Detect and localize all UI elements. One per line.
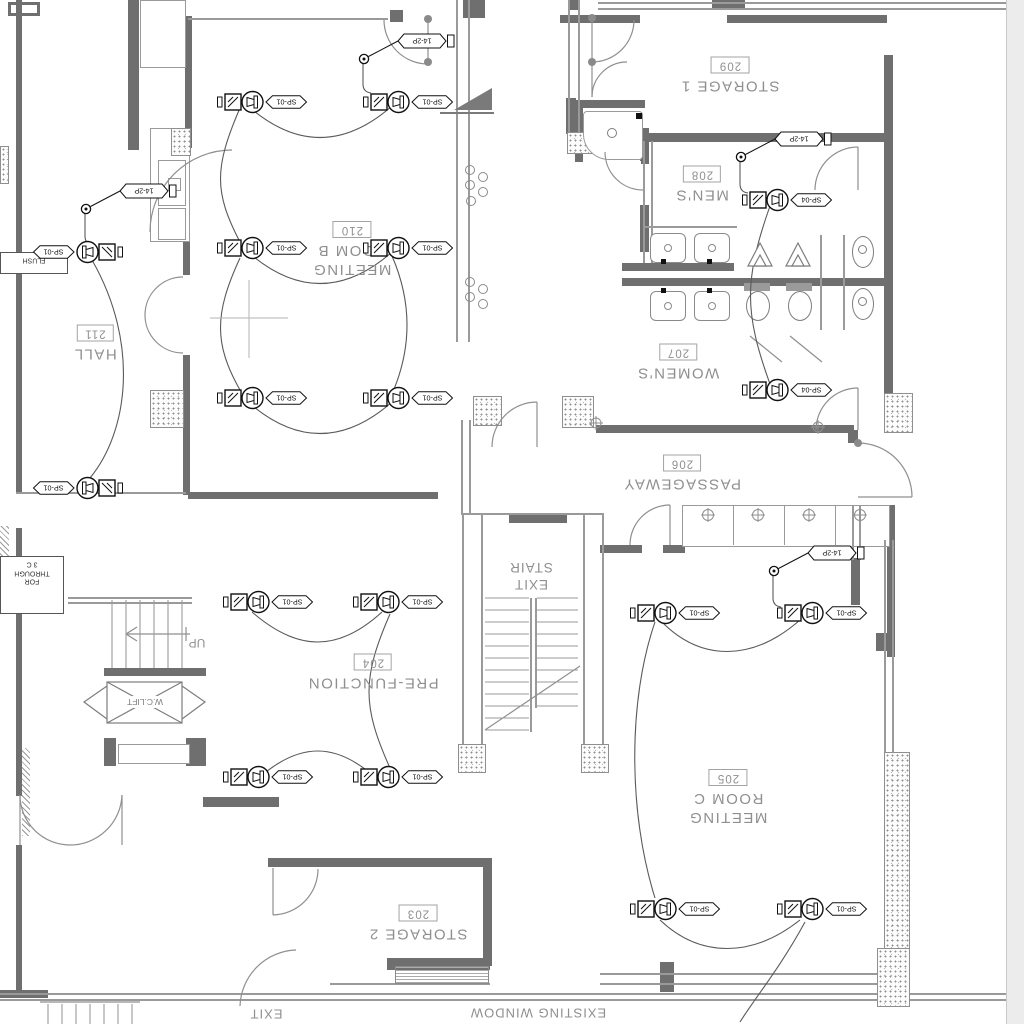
- svg-text:SP-01: SP-01: [277, 243, 297, 252]
- room-name: HALL: [73, 345, 117, 364]
- speaker-device-icon: SP-04: [741, 377, 833, 408]
- speaker-device-icon: SP-01: [352, 764, 444, 795]
- svg-text:SP-01: SP-01: [413, 597, 433, 606]
- svg-text:SP-01: SP-01: [44, 247, 64, 256]
- room-label-storage-1: STORAGE 1209: [680, 57, 779, 96]
- svg-text:SP-01: SP-01: [690, 608, 710, 617]
- cable-note-line: FOR: [2, 576, 62, 585]
- svg-text:SP-01: SP-01: [283, 597, 303, 606]
- speaker-device-icon: SP-01: [216, 235, 308, 266]
- speaker-device-icon: SP-01: [776, 896, 868, 927]
- svg-text:14-2P: 14-2P: [412, 36, 431, 45]
- speaker-device-icon: SP-01: [32, 475, 124, 506]
- room-name: STORAGE 1: [680, 77, 779, 96]
- page-edge: [1006, 0, 1024, 1024]
- speaker-device-icon: SP-01: [776, 600, 868, 631]
- svg-text:SP-01: SP-01: [44, 483, 64, 492]
- cable-junction-icon: 14-2P: [768, 540, 868, 585]
- exit-stair-label: EXIT STAIR: [509, 559, 553, 593]
- room-number: 211: [76, 325, 113, 342]
- room-number: 208: [683, 166, 721, 183]
- exit-stair-line: STAIR: [509, 559, 553, 576]
- speaker-device-icon: SP-01: [629, 600, 721, 631]
- speaker-device-icon: SP-01: [222, 764, 314, 795]
- svg-text:SP-04: SP-04: [802, 385, 822, 394]
- speaker-wires: [85, 63, 805, 1022]
- room-name: WOMEN'S: [637, 364, 720, 383]
- cable-junction-icon: 14-2P: [80, 178, 180, 223]
- plan-linework: [0, 0, 1024, 1024]
- room-name: PRE-FUNCTION: [307, 674, 438, 693]
- exit-stair-line: EXIT: [509, 576, 553, 593]
- svg-text:SP-04: SP-04: [802, 195, 822, 204]
- svg-text:14-2P: 14-2P: [789, 134, 808, 143]
- room-name: PASSAGEWAY: [623, 475, 741, 494]
- room-number: 203: [399, 905, 437, 922]
- svg-text:SP-01: SP-01: [413, 772, 433, 781]
- up-label: UP: [189, 636, 206, 650]
- room-label-womens: WOMEN'S207: [637, 344, 720, 383]
- room-label-mens: MEN'S208: [675, 166, 729, 205]
- svg-text:SP-01: SP-01: [283, 772, 303, 781]
- svg-text:SP-01: SP-01: [277, 393, 297, 402]
- svg-text:14-2P: 14-2P: [134, 186, 153, 195]
- room-label-storage-2: STORAGE 2203: [368, 905, 467, 944]
- speaker-device-icon: SP-01: [216, 385, 308, 416]
- cable-note-line: 3 C: [2, 559, 62, 568]
- speaker-device-icon: SP-01: [216, 89, 308, 120]
- floor-plan: 3 C THROUGH FOR FLUSH UP W.C.LIFT EXIT E…: [0, 0, 1024, 1024]
- cable-junction-icon: 14-2P: [735, 126, 835, 171]
- speaker-device-icon: SP-01: [362, 385, 454, 416]
- room-name: STORAGE 2: [368, 925, 467, 944]
- svg-text:14-2P: 14-2P: [822, 548, 841, 557]
- svg-text:SP-01: SP-01: [423, 393, 443, 402]
- room-label-pre-function: PRE-FUNCTION204: [307, 654, 438, 693]
- cable-note-line: THROUGH: [2, 568, 62, 577]
- room-number: 209: [711, 57, 749, 74]
- svg-text:SP-01: SP-01: [423, 243, 443, 252]
- speaker-device-icon: SP-01: [352, 589, 444, 620]
- room-name: MEN'S: [675, 186, 729, 205]
- room-label-meeting-room-c: MEETINGROOM C205: [689, 769, 768, 827]
- room-number: 205: [709, 769, 747, 786]
- room-label-hall: HALL211: [73, 325, 117, 364]
- hook-circles: [466, 166, 488, 309]
- speaker-device-icon: SP-01: [362, 235, 454, 266]
- room-number: 207: [659, 344, 697, 361]
- svg-text:SP-01: SP-01: [837, 608, 857, 617]
- svg-text:SP-01: SP-01: [837, 904, 857, 913]
- room-number: 204: [354, 654, 392, 671]
- svg-text:SP-01: SP-01: [277, 97, 297, 106]
- speaker-device-icon: SP-04: [741, 187, 833, 218]
- speaker-device-icon: SP-01: [629, 896, 721, 927]
- speaker-device-icon: SP-01: [362, 89, 454, 120]
- cable-junction-icon: 14-2P: [358, 28, 458, 73]
- room-name: ROOM C: [689, 789, 768, 808]
- wc-lift-label: W.C.LIFT: [124, 696, 166, 708]
- svg-text:SP-01: SP-01: [690, 904, 710, 913]
- exit-label: EXIT: [250, 1007, 283, 1022]
- svg-text:SP-01: SP-01: [423, 97, 443, 106]
- cable-note: 3 C THROUGH FOR: [0, 556, 64, 614]
- room-label-passageway: PASSAGEWAY206: [623, 455, 741, 494]
- room-number: 206: [663, 455, 701, 472]
- room-name: MEETING: [689, 808, 768, 827]
- existing-window-label: EXISTING WINDOW: [470, 1006, 606, 1021]
- speaker-device-icon: SP-01: [222, 589, 314, 620]
- speaker-device-icon: SP-01: [32, 239, 124, 270]
